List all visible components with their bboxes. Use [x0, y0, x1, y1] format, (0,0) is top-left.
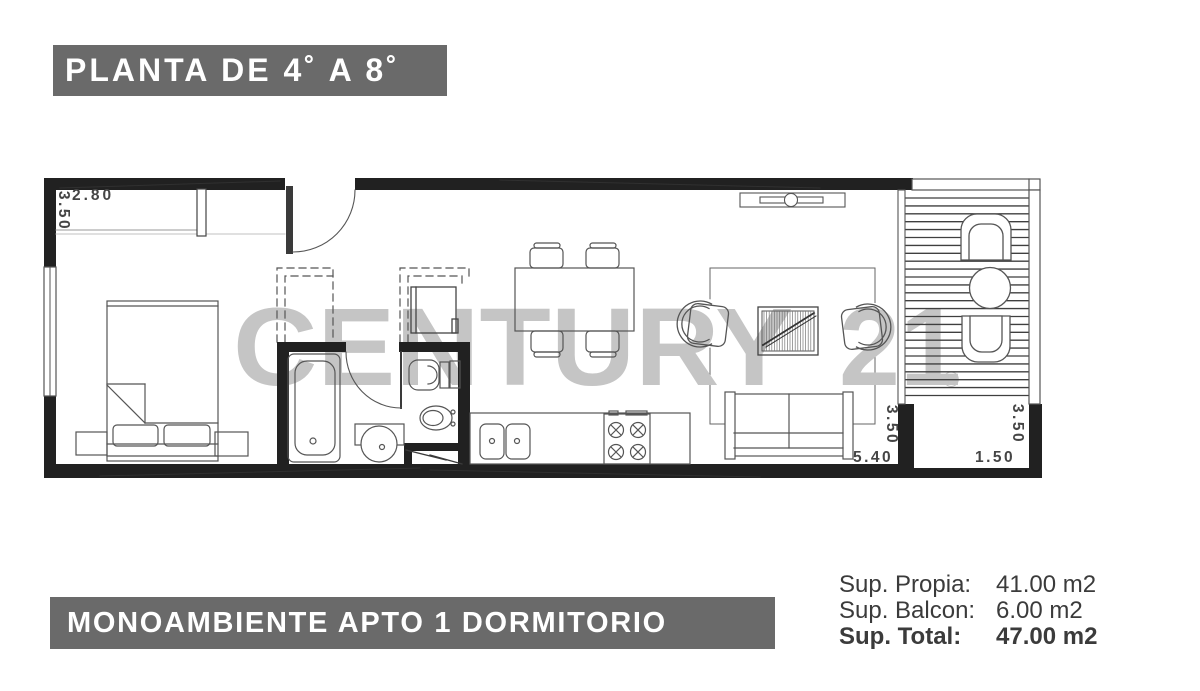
svg-text:1.50: 1.50	[975, 449, 1015, 466]
svg-text:5.40: 5.40	[853, 449, 893, 466]
svg-text:2.80: 2.80	[72, 187, 114, 204]
svg-text:3.50: 3.50	[1009, 404, 1026, 444]
svg-text:3.50: 3.50	[55, 191, 72, 231]
svg-text:3.50: 3.50	[883, 405, 900, 445]
